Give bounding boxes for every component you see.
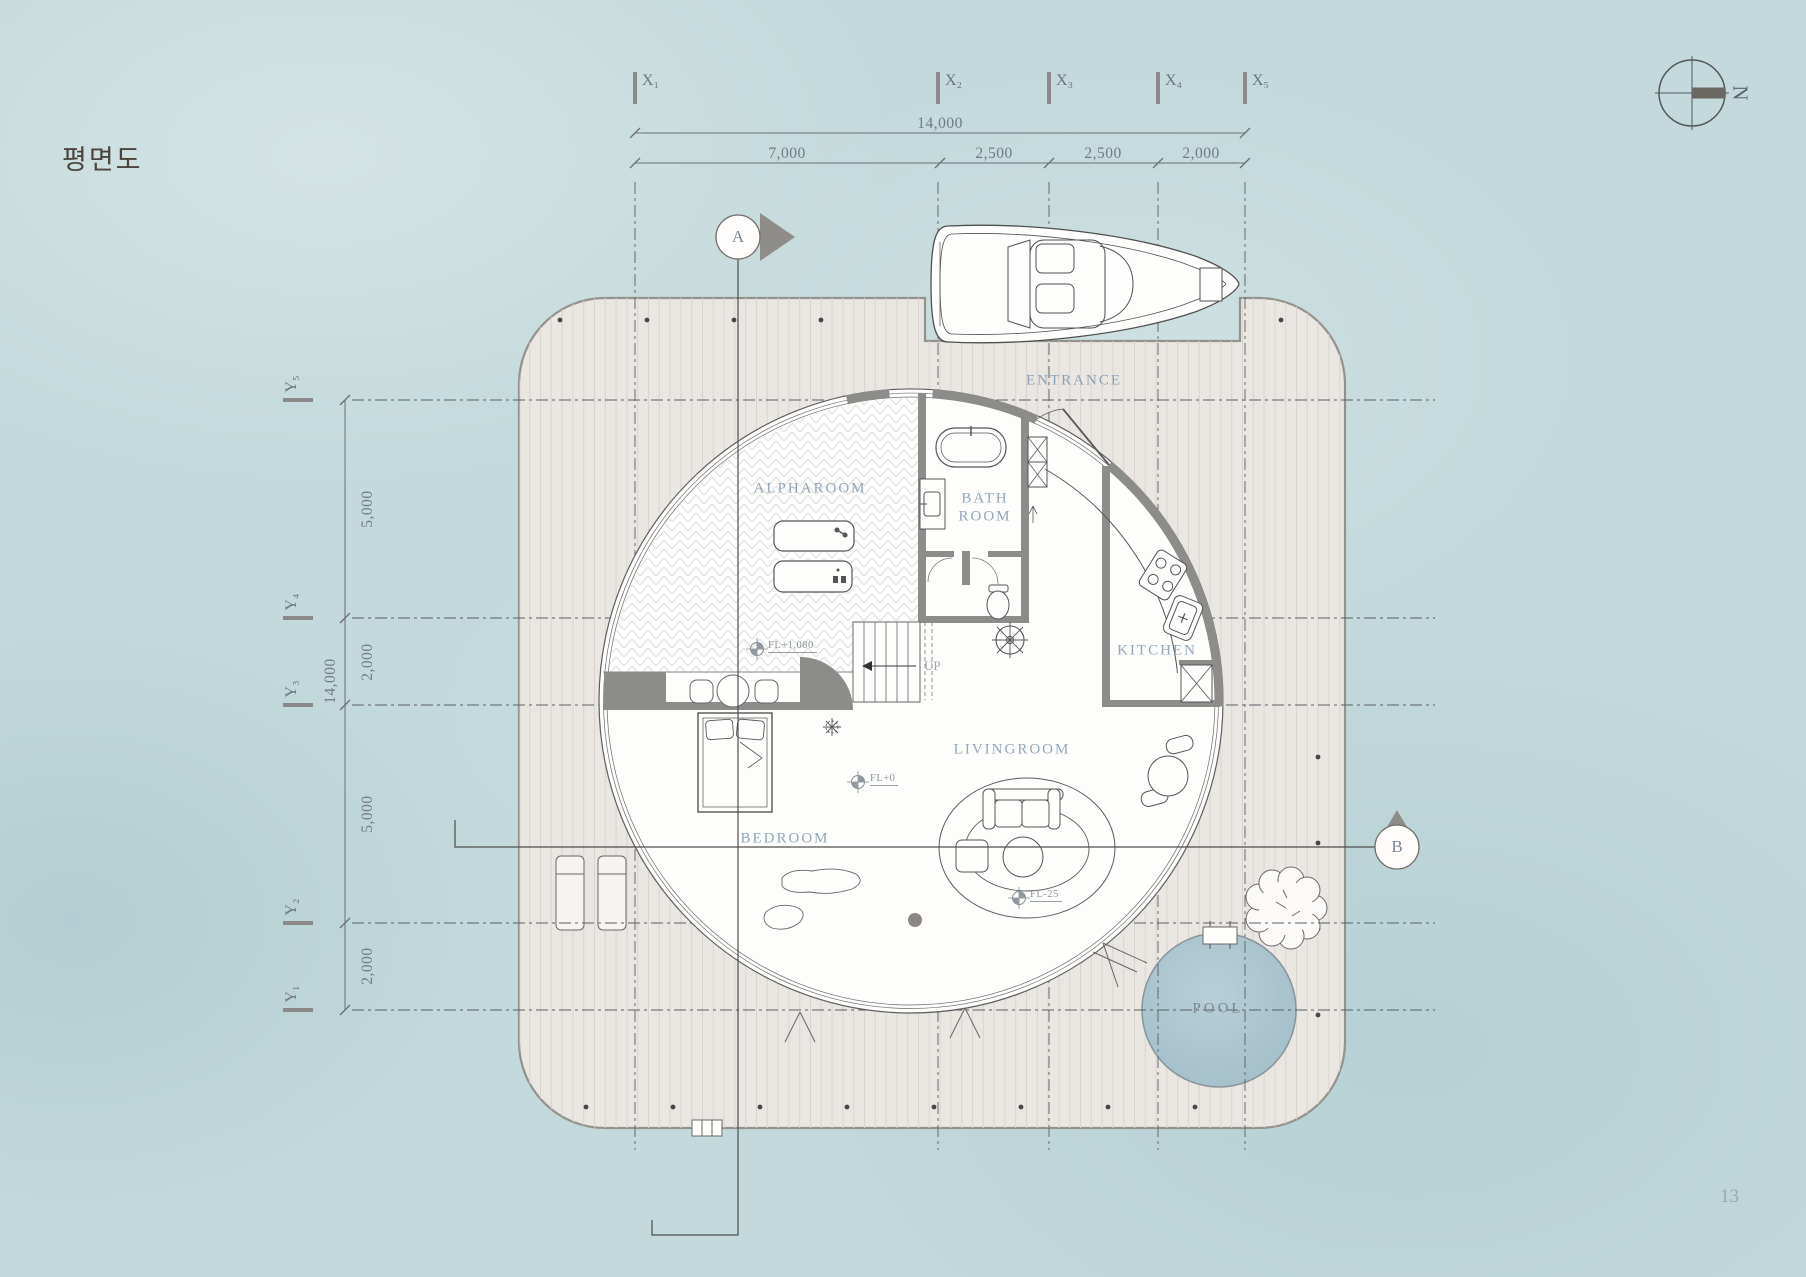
room-label-livingroom: LIVINGROOM <box>954 742 1071 759</box>
room-label-alpharoom: ALPHAROOM <box>753 481 866 498</box>
section-label-b: B <box>1391 837 1402 857</box>
stairs <box>853 622 932 702</box>
grid-label-y3: Y₃ <box>283 680 301 697</box>
room-label-kitchen: KITCHEN <box>1117 643 1197 660</box>
dressing-table <box>690 675 778 707</box>
house <box>599 389 1223 1013</box>
grid-label-x3: X₃ <box>1056 72 1073 90</box>
boat-seat <box>1036 284 1074 313</box>
compass-north-label: N <box>1728 85 1753 100</box>
grid-label-y2: Y₂ <box>283 898 301 915</box>
dim-left-seg-3: 5,000 <box>359 795 377 832</box>
shaft-boxes <box>1028 437 1047 487</box>
dim-top-total: 14,000 <box>917 115 963 133</box>
room-label-bath: BATH <box>961 491 1008 508</box>
dim-left-total: 14,000 <box>322 658 340 704</box>
compass-icon <box>1655 56 1729 130</box>
coffee-table <box>1003 837 1043 877</box>
room-label-entrance: ENTRANCE <box>1026 373 1122 390</box>
dim-top-seg-3: 2,500 <box>1084 145 1121 163</box>
dim-top-seg-2: 2,500 <box>975 145 1012 163</box>
section-label-a: A <box>732 227 744 247</box>
dim-left-seg-4: 2,000 <box>359 947 377 984</box>
boat <box>931 225 1239 343</box>
room-label-bath-room: ROOM <box>958 509 1011 526</box>
compass-north-pointer <box>1692 88 1725 99</box>
level-main: FL+0 <box>870 773 898 786</box>
grid-label-y1: Y₁ <box>283 985 301 1002</box>
dim-top-seg-4: 2,000 <box>1182 145 1219 163</box>
grid-label-x2: X₂ <box>945 72 962 90</box>
level-alpharoom: FL+1,080 <box>768 640 817 653</box>
bathroom-sink <box>920 479 945 529</box>
room-label-bedroom: BEDROOM <box>740 831 829 848</box>
deck-edge-ladder <box>692 1120 722 1136</box>
dim-left-seg-1: 5,000 <box>359 490 377 527</box>
floor-plan-drawing <box>0 0 1806 1277</box>
grid-label-x4: X₄ <box>1165 72 1182 90</box>
grid-label-y4: Y₄ <box>283 593 301 610</box>
pool-ladder <box>1203 927 1237 944</box>
grid-label-y5: Y₅ <box>283 375 301 392</box>
room-label-pool: POOL <box>1192 1001 1243 1018</box>
grid-label-x1: X₁ <box>642 72 659 90</box>
page-title: 평면도 <box>62 138 143 177</box>
toilet <box>987 585 1009 619</box>
bathtub <box>936 426 1006 467</box>
page-number: 13 <box>1720 1186 1739 1208</box>
grid-label-x5: X₅ <box>1252 72 1269 90</box>
stairs-up-label: UP <box>924 658 941 674</box>
sofa <box>983 789 1063 829</box>
kitchen-cabinet-box <box>1181 665 1212 702</box>
bed <box>698 713 772 812</box>
floor-plan-sheet: 평면도 13 N A B X₁ X₂ X₃ X₄ X₅ Y₁ Y₂ Y₃ Y₄ … <box>0 0 1806 1277</box>
boat-seat <box>1036 244 1074 273</box>
column <box>908 913 922 927</box>
dim-left-seg-2: 2,000 <box>359 643 377 680</box>
level-lounge: FL-25 <box>1030 889 1062 902</box>
ship-wheel-decor <box>992 622 1028 658</box>
dim-top-seg-1: 7,000 <box>768 145 805 163</box>
side-table <box>956 840 988 872</box>
